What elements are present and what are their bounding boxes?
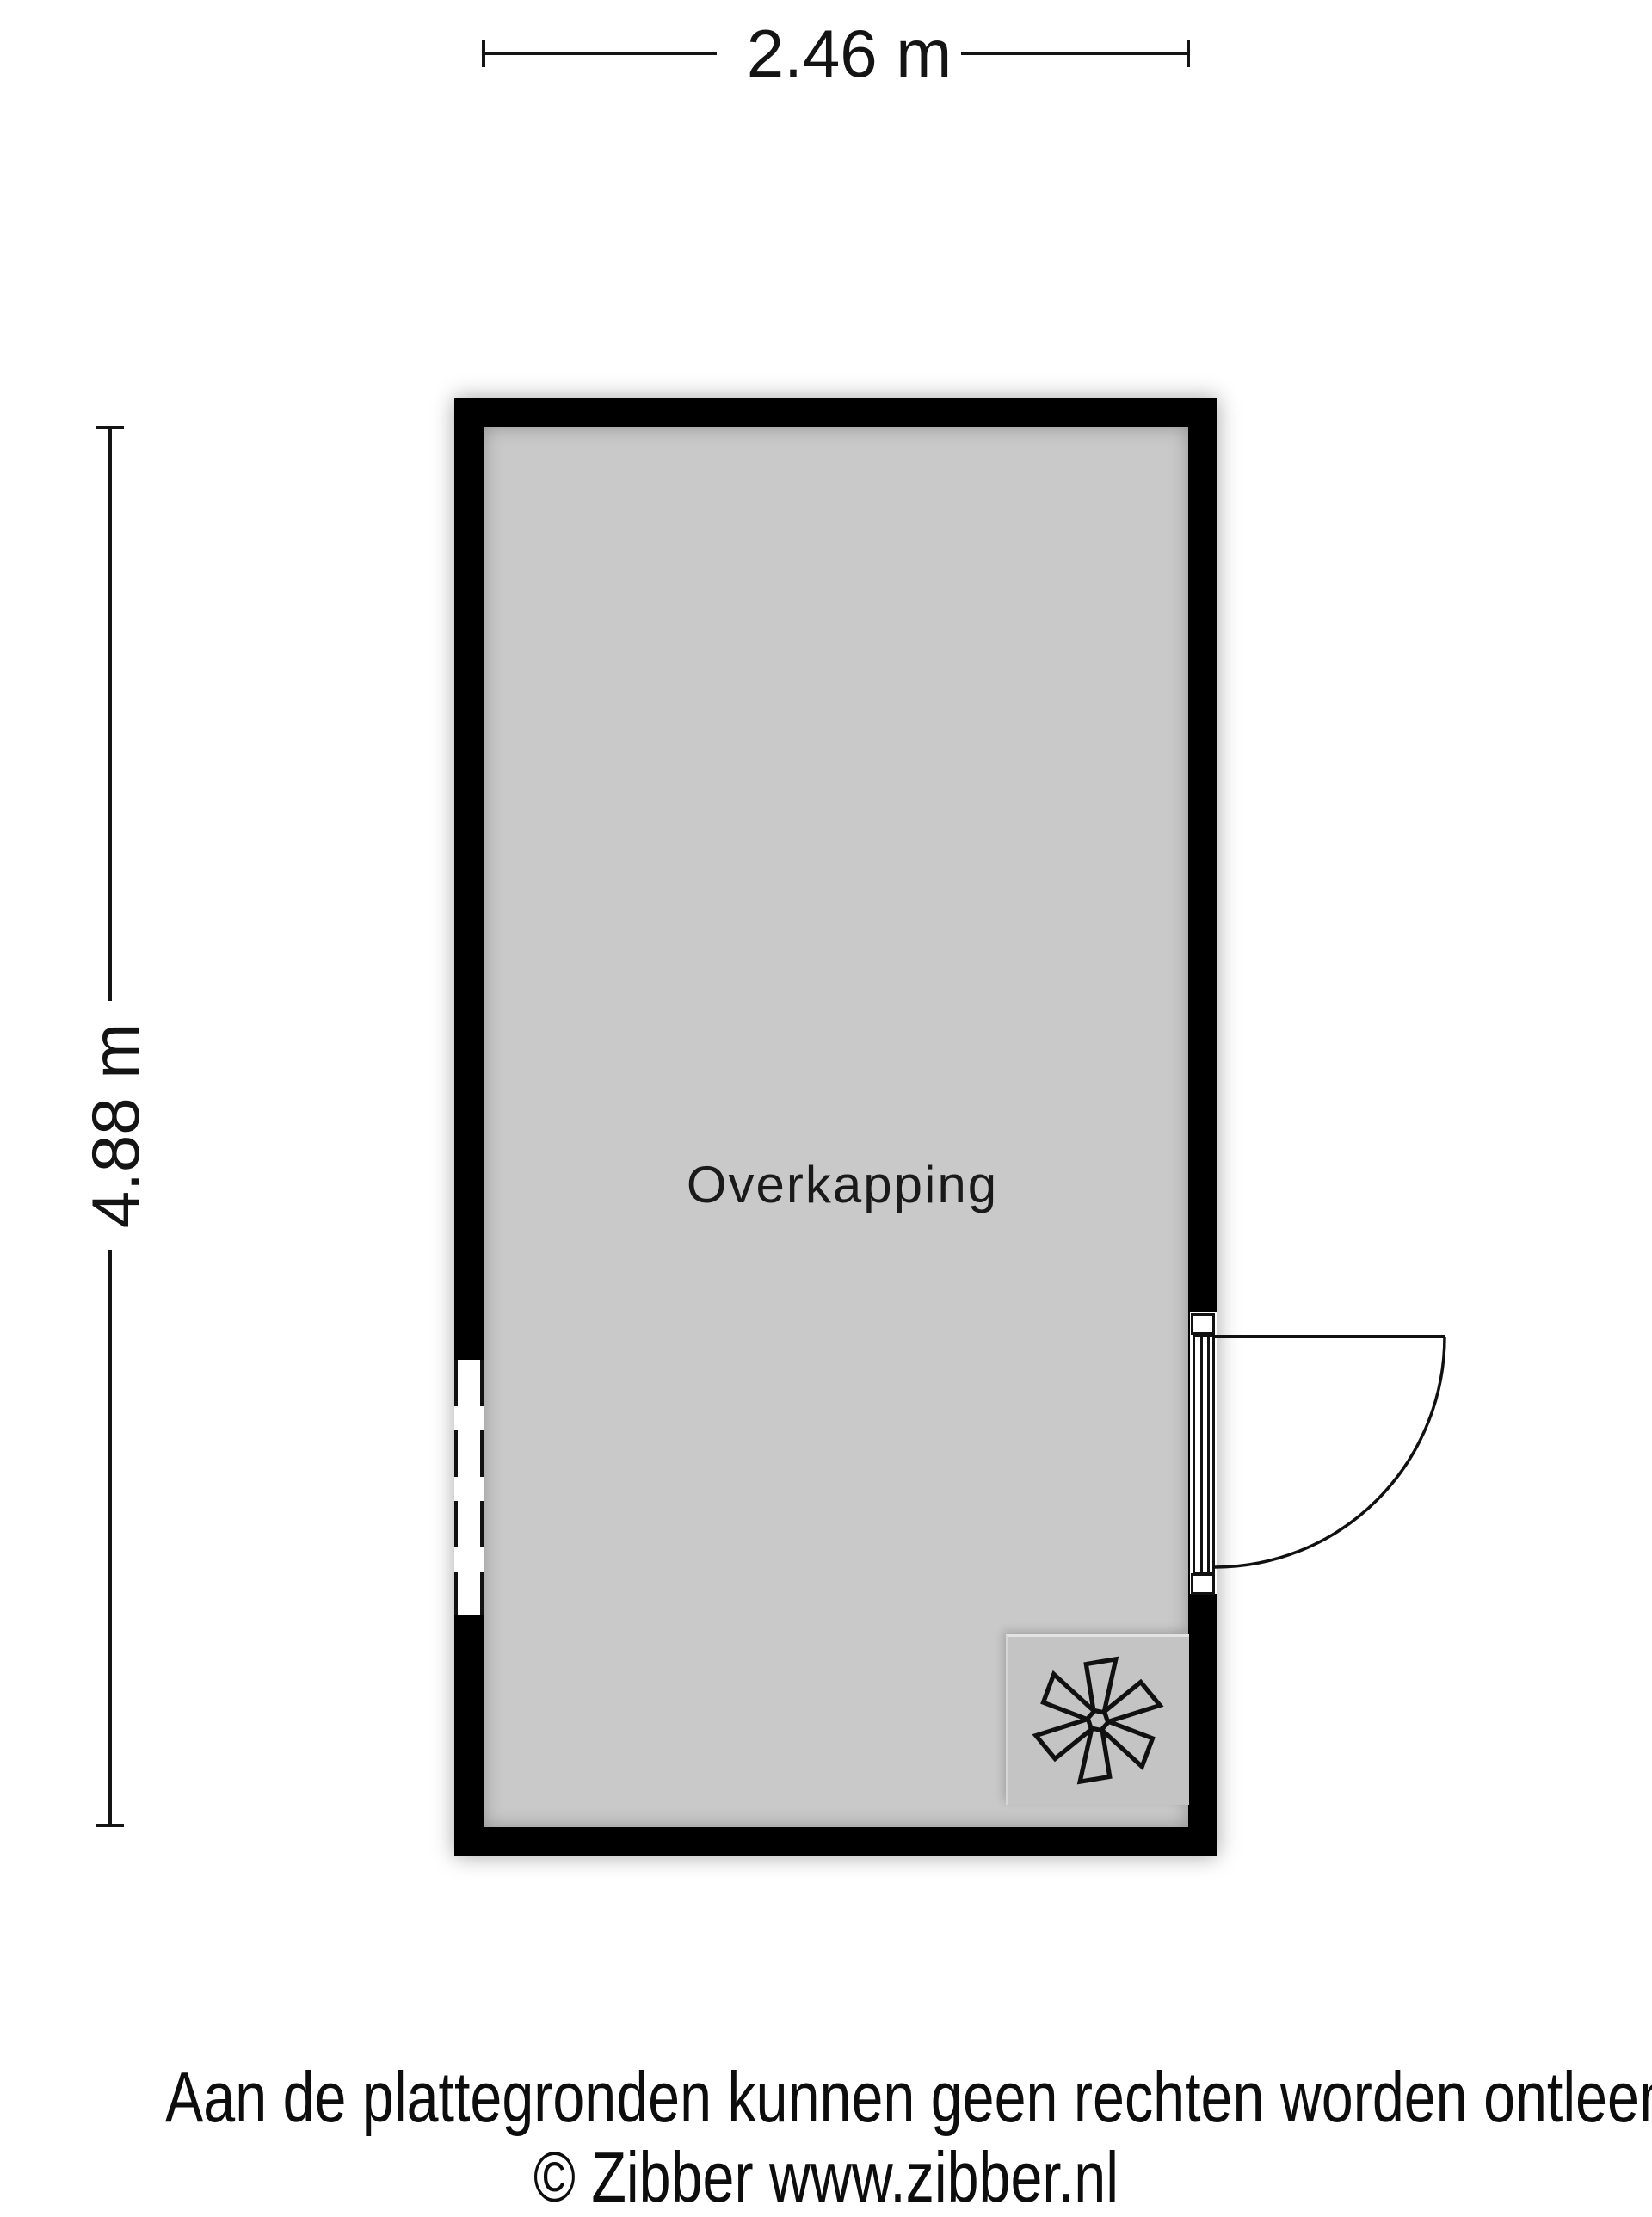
window-opening xyxy=(454,1360,484,1615)
dimension-width-line-right xyxy=(961,52,1189,55)
fan-box xyxy=(1006,1634,1189,1805)
footer-copyright: © Zibber www.zibber.nl xyxy=(165,2139,1487,2216)
room-floor xyxy=(484,427,1188,1827)
window-dashed-line-inner xyxy=(480,1360,484,1615)
footer-disclaimer: Aan de plattegronden kunnen geen rechten… xyxy=(165,2059,1487,2136)
door-swing-arc xyxy=(1205,1325,1463,1584)
door-panel-line xyxy=(1200,1337,1203,1572)
dimension-height-label: 4.88 m xyxy=(94,975,137,1276)
dimension-width-line-left xyxy=(484,52,717,55)
dimension-width-label: 2.46 m xyxy=(699,19,1000,88)
window-dashed-line-outer xyxy=(454,1360,458,1615)
room-label: Overkapping xyxy=(627,1159,1057,1211)
fan-icon xyxy=(1016,1639,1180,1802)
dimension-height-tick-bottom xyxy=(96,1824,124,1827)
dimension-width-tick-right xyxy=(1187,40,1190,67)
dimension-height-line-bottom xyxy=(108,1250,112,1826)
floorplan-page: { "plan": { "room": { "label": "Overkapp… xyxy=(0,0,1652,2203)
dimension-height-line-top xyxy=(108,428,112,1001)
